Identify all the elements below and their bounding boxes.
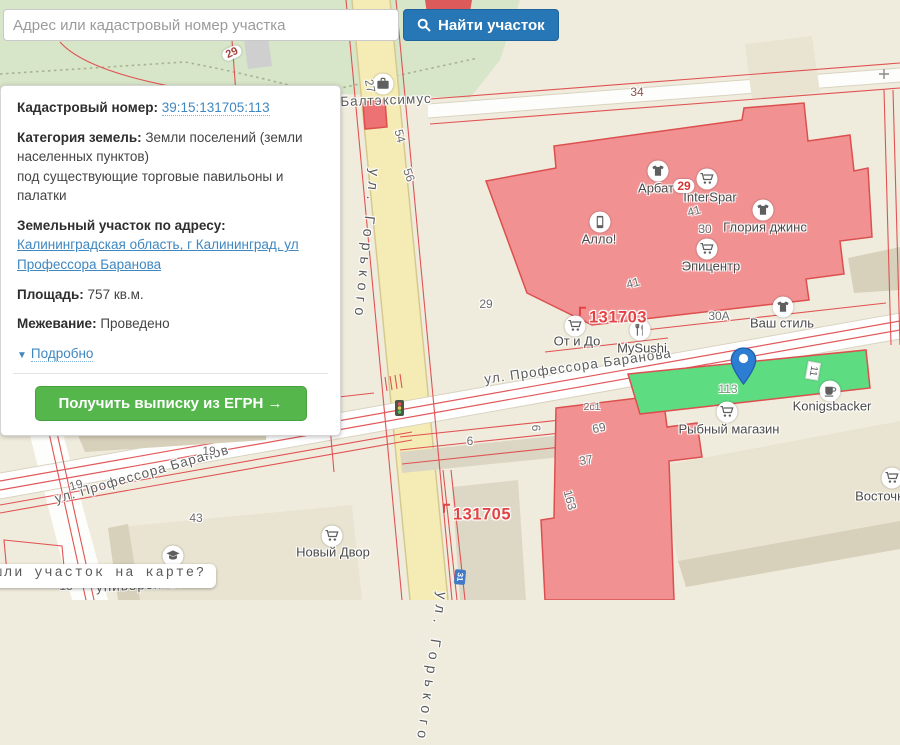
survey-label: Межевание: — [17, 316, 97, 331]
find-parcel-button-label: Найти участок — [438, 17, 545, 34]
cadastral-map-page: { "search": { "placeholder": "Адрес или … — [0, 0, 900, 600]
cadastral-number-link[interactable]: 39:15:131705:113 — [162, 100, 270, 116]
traffic-light-icon — [395, 400, 404, 416]
details-link[interactable]: Подробно — [31, 346, 94, 362]
parcel-info-panel: Кадастровый номер: 39:15:131705:113 Кате… — [0, 85, 341, 436]
survey-value: Проведено — [100, 316, 169, 331]
cart-icon — [697, 239, 718, 260]
cart-icon — [882, 468, 900, 489]
utensils-icon — [630, 320, 651, 341]
map-pin[interactable] — [730, 347, 757, 390]
find-parcel-button[interactable]: Найти участок — [403, 9, 559, 41]
area-label: Площадь: — [17, 287, 84, 302]
briefcase-icon — [373, 74, 394, 95]
area-value: 757 кв.м. — [88, 287, 144, 302]
phone-icon — [590, 212, 611, 233]
search-icon — [417, 18, 431, 32]
cart-icon — [322, 526, 343, 547]
tshirt-icon — [753, 200, 774, 221]
cart-icon — [697, 169, 718, 190]
land-category-note: под существующие торговые павильоны и па… — [17, 169, 283, 204]
address-link[interactable]: Калининградская область, г Калининград, … — [17, 237, 299, 272]
cup-icon — [820, 381, 841, 402]
search-input[interactable] — [3, 9, 399, 41]
map-hint-text: шли участок на карте? — [0, 566, 206, 581]
cadastral-number-label: Кадастровый номер: — [17, 100, 158, 115]
map-hint-tooltip: шли участок на карте? — [0, 564, 216, 588]
address-label: Земельный участок по адресу: — [17, 218, 226, 233]
street-label: ул. Горького — [412, 591, 449, 745]
tshirt-icon — [773, 297, 794, 318]
panel-divider — [13, 373, 328, 374]
egrn-extract-button[interactable]: Получить выписку из ЕГРН → — [35, 386, 307, 421]
land-category-label: Категория земель: — [17, 130, 142, 145]
cart-icon — [565, 316, 586, 337]
chevron-down-icon: ▼ — [17, 350, 27, 361]
tshirt-icon — [648, 161, 669, 182]
details-toggle[interactable]: ▼Подробно — [17, 344, 324, 364]
cart-icon — [717, 402, 738, 423]
